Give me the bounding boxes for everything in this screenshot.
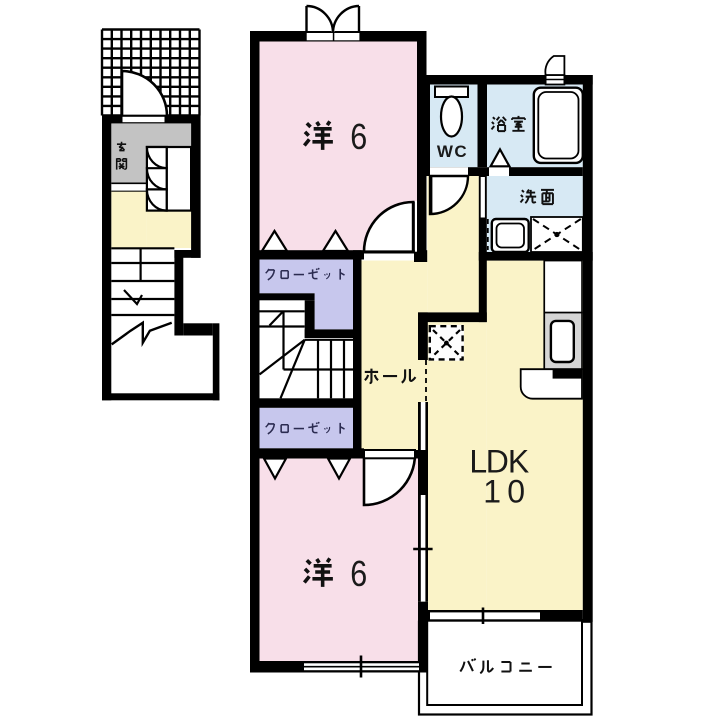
svg-text:6: 6 [350, 553, 367, 594]
svg-text:1: 1 [483, 474, 501, 510]
svg-text:6: 6 [350, 116, 367, 157]
svg-text:0: 0 [507, 474, 525, 510]
svg-text:WC: WC [437, 142, 468, 161]
